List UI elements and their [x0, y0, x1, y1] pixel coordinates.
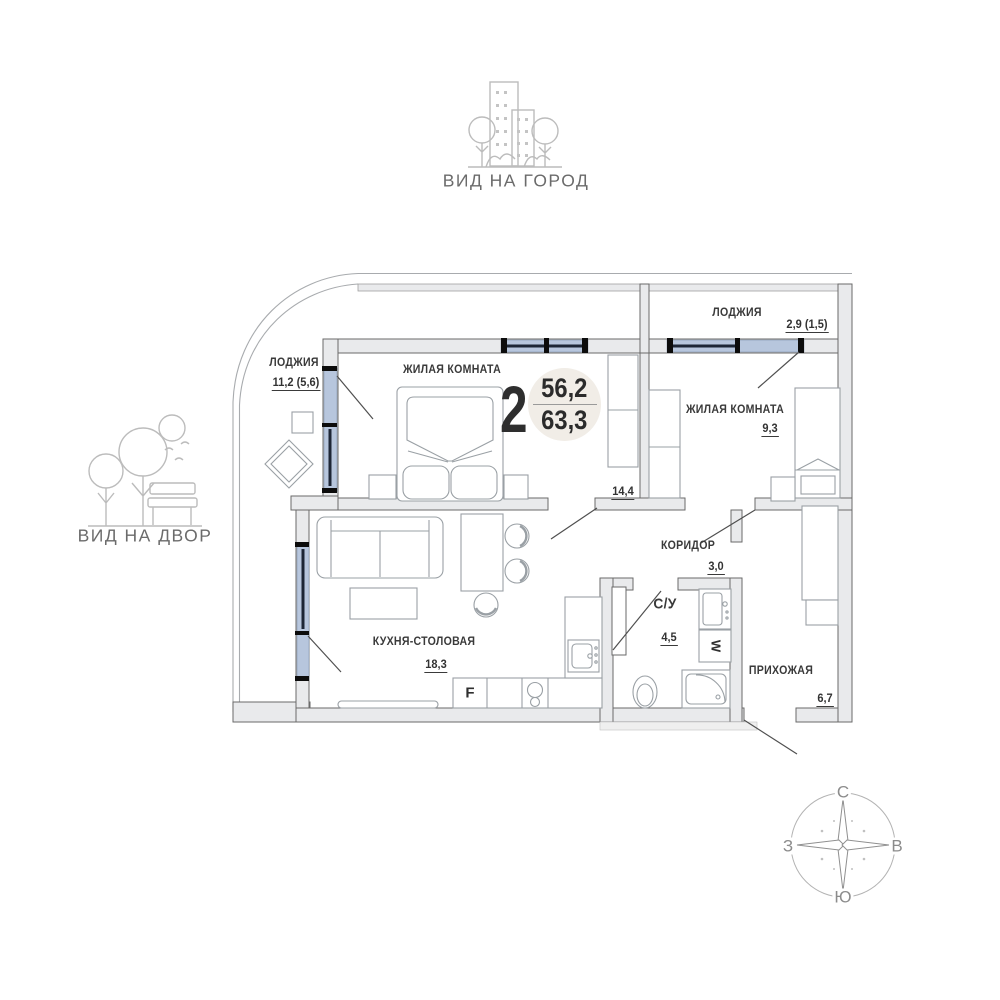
city-view-icon — [468, 82, 562, 167]
total-area-value: 63,3 — [541, 405, 587, 436]
floor-plan-canvas — [0, 0, 1000, 1000]
room-name-loggia-top: ЛОДЖИЯ — [712, 307, 761, 319]
room-area-kitchen: 18,3 — [424, 657, 447, 671]
wardrobe-room2 — [649, 390, 680, 498]
room-name-bathroom: С/У — [653, 596, 676, 613]
rooms-count: 2 — [500, 381, 528, 437]
kitchen-sink — [565, 597, 602, 678]
toilet — [633, 676, 657, 708]
entrance-threshold — [600, 722, 757, 730]
room-name-hallway: ПРИХОЖАЯ — [749, 665, 813, 677]
shower — [682, 670, 730, 708]
living-area-value: 56,2 — [541, 373, 587, 404]
room-area-loggia-left: 11,2 (5,6) — [272, 375, 320, 389]
yard-view-icon — [88, 415, 202, 526]
room-name-living-room-second: ЖИЛАЯ КОМНАТА — [686, 404, 784, 416]
chair — [505, 524, 529, 548]
room-area-bathroom: 4,5 — [660, 630, 677, 644]
room-name-corridor: КОРИДОР — [661, 540, 715, 552]
room-name-loggia-left: ЛОДЖИЯ — [269, 357, 318, 369]
compass-icon — [791, 793, 895, 897]
room-area-loggia-top: 2,9 (1,5) — [786, 317, 829, 331]
sofa — [317, 517, 443, 578]
hallway-wardrobe — [802, 506, 838, 625]
compass-east-label: В — [889, 838, 904, 855]
compass-south-label: Ю — [832, 889, 853, 906]
compass-north-label: С — [835, 784, 851, 801]
chair — [505, 559, 529, 583]
room-name-living-room-main: ЖИЛАЯ КОМНАТА — [403, 364, 501, 376]
city-view-label: ВИД НА ГОРОД — [443, 171, 590, 192]
dining-table — [461, 514, 503, 591]
nightstand — [771, 477, 795, 501]
fridge-label: F — [465, 685, 474, 702]
wardrobe-room1 — [608, 355, 638, 467]
bed-single — [795, 388, 840, 498]
room-name-kitchen: КУХНЯ-СТОЛОВАЯ — [373, 636, 476, 648]
nightstand — [504, 475, 528, 499]
bed-double — [397, 387, 503, 501]
chair — [474, 593, 498, 617]
yard-view-label: ВИД НА ДВОР — [78, 526, 213, 547]
loggia-table — [292, 412, 313, 433]
parapet-bar — [358, 284, 840, 291]
nightstand — [369, 475, 396, 499]
room-area-living-room-second: 9,3 — [761, 421, 778, 435]
kitchen-counter — [453, 678, 602, 708]
bathroom-sink — [699, 589, 731, 629]
coffee-table — [350, 588, 417, 619]
washer-label: W — [709, 640, 724, 652]
room-area-living-room-main: 14,4 — [611, 484, 634, 498]
loggia-chair — [265, 440, 313, 488]
compass-west-label: З — [781, 838, 795, 855]
vent-shaft — [612, 587, 626, 655]
room-area-corridor: 3,0 — [707, 559, 724, 573]
area-badge: 56,2 63,3 — [528, 368, 601, 441]
rug — [338, 701, 438, 708]
room-area-hallway: 6,7 — [816, 691, 833, 705]
